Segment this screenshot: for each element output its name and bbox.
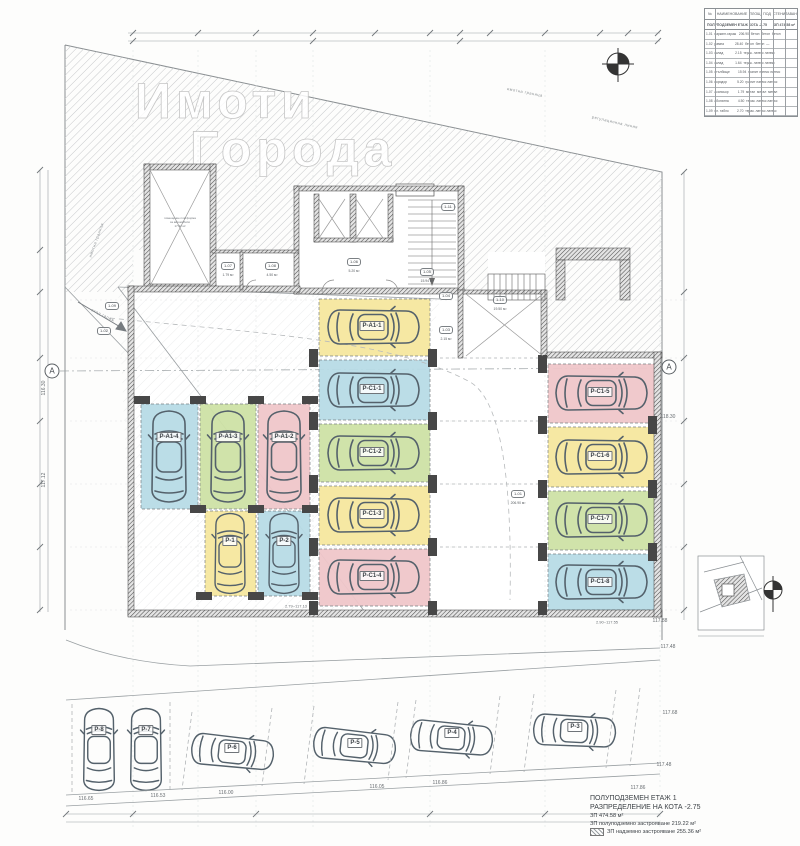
room-tag: 1-03 [439, 326, 453, 334]
area-semi-underground: ЗП полуподземно застрояване 219.22 м² [590, 820, 701, 828]
spot-elevation: 116.86 [433, 780, 448, 786]
schedule-row: 1-06 коридор 5.20 гранит латекс латекс [705, 78, 797, 88]
spot-elevation: 116.53 [151, 793, 166, 799]
area-total: ЗП 474.58 м² [590, 812, 701, 820]
grid-axis-bubble: А [662, 360, 677, 375]
car-platform-note: помещение платформа за автомобили 17.02 … [164, 216, 196, 228]
area-above-text: ЗП надземно застрояване 255.36 м² [607, 828, 701, 836]
col-header: ТАВАН [785, 12, 797, 16]
table-grid-line [715, 9, 716, 116]
spot-elevation: 116.65 [79, 796, 94, 802]
table-grid-line [785, 9, 786, 116]
area-semi-text: ЗП полуподземно застрояване 219.22 м² [590, 820, 696, 828]
stall-label: P-6 [224, 743, 239, 753]
room-area: 5.20 м² [348, 269, 359, 273]
room-tag: 1-04 [439, 292, 453, 300]
stall-label: P-C1-4 [359, 571, 384, 581]
stall-label: P-C1-8 [587, 577, 612, 587]
key-plan [698, 556, 764, 636]
room-tag: 1-02 [97, 327, 111, 335]
stall-label: P-C1-5 [587, 387, 612, 397]
area-total-text: ЗП 474.58 м² [590, 812, 623, 820]
room-tag: 1-01 [511, 490, 525, 498]
floor-plan-sheet: Имоти Города [0, 0, 800, 846]
col-header: № [705, 12, 715, 16]
spot-elevation: 117.88 [653, 618, 668, 624]
plan-drawing: Имоти Города [0, 0, 800, 846]
schedule-row: 1-08 абонатна 4.50 терак. латекс латекс [705, 97, 797, 107]
room-tag: 1-05 [420, 268, 434, 276]
stall-label: P-7 [138, 725, 153, 735]
stall-label: P-C1-7 [587, 514, 612, 524]
stall-label: P-8 [91, 725, 106, 735]
stall-label: P-A1-2 [271, 432, 296, 442]
schedule-row: 1-01 паркинг-гараж 206.90 бетон бетон бе… [705, 30, 797, 40]
schedule-row: 1-05 стълбище 15.94 гранит латекс латекс [705, 68, 797, 78]
hatch-legend-chip [590, 828, 604, 836]
stall-label: P-2 [276, 536, 291, 546]
drawing-legend: ПОЛУПОДЗЕМЕН ЕТАЖ 1 РАЗПРЕДЕЛЕНИЕ НА КОТ… [590, 794, 701, 836]
spot-elevation: 2.90~117.55 [596, 620, 618, 625]
spot-elevation: 116.30 [41, 381, 47, 396]
room-tag: 1-06 [347, 258, 361, 266]
spot-elevation: 117.12 [41, 473, 47, 488]
stall-label: P-C1-2 [359, 447, 384, 457]
note-line: 17.02 м² [164, 224, 196, 228]
schedule-subtitle-row: ПОЛУПОДЗЕМЕН ЕТАЖ КОТА -2.75 ЗП 474.58 м… [705, 20, 797, 30]
stall-label: P-1 [222, 536, 237, 546]
schedule-row: 1-04 склад 1.64 терак. латекс латекс [705, 59, 797, 69]
room-area: 206.90 м² [511, 501, 526, 505]
room-tag: 1-09 [105, 302, 119, 310]
spot-elevation: 117.48 [661, 644, 676, 650]
room-schedule-table: № НАИМЕНОВАНИЕ ПЛОЩ ПОД СТЕНИ ТАВАН ПОЛУ… [704, 8, 798, 117]
stall-label: P-5 [347, 738, 362, 748]
spot-elevation: 117.86 [631, 785, 646, 791]
room-area: 4.50 м² [266, 273, 277, 277]
room-tag: 1-11 [441, 203, 455, 211]
floor-subtitle: РАЗПРЕДЕЛЕНИЕ НА КОТА -2.75 [590, 803, 701, 812]
stall-label: P-A1-3 [215, 432, 240, 442]
schedule-row: 1-02 рампа 28.40 бетон бетон — [705, 40, 797, 50]
room-area: 15.94 м² [421, 279, 434, 283]
table-grid-line [761, 9, 762, 116]
room-area: 1.79 м² [222, 273, 233, 277]
area-above-ground: ЗП надземно застрояване 255.36 м² [590, 828, 701, 836]
stall-label: P-A1-1 [359, 321, 384, 331]
stall-label: P-A1-4 [156, 432, 181, 442]
room-tag: 1-07 [221, 262, 235, 270]
spot-elevation: 116.00 [219, 790, 234, 796]
schedule-row: 1-03 склад 2.15 терак. латекс латекс [705, 49, 797, 59]
room-tag: 1-08 [265, 262, 279, 270]
spot-elevation: 117.48 [657, 762, 672, 768]
schedule-row: 1-07 асансьор 1.79 метал метал метал [705, 88, 797, 98]
room-area: 2.15 м² [440, 337, 451, 341]
floor-title: ПОЛУПОДЗЕМЕН ЕТАЖ 1 [590, 794, 701, 803]
grid-axis-bubble: А [45, 364, 60, 379]
spot-elevation: 118.30 [661, 414, 676, 420]
schedule-row: 1-09 ел. табло 2.70 терак. латекс латекс [705, 107, 797, 117]
room-tag: 1-10 [493, 296, 507, 304]
spot-elevation: 116.05 [370, 784, 385, 790]
col-header: НАИМЕНОВАНИЕ [715, 12, 749, 16]
car-icon [81, 709, 118, 791]
north-arrow-small-icon [764, 576, 782, 612]
room-area: 19.50 м² [494, 307, 507, 311]
spot-elevation: 2.79~117.13 [285, 604, 307, 609]
stall-label: P-4 [444, 728, 459, 738]
north-arrow-icon [602, 48, 634, 82]
stall-label: P-C1-3 [359, 509, 384, 519]
stall-label: P-C1-6 [587, 451, 612, 461]
stall-label: P-C1-1 [359, 384, 384, 394]
table-grid-line [749, 9, 750, 116]
stall-label: P-3 [567, 722, 582, 732]
col-header: ПОД [761, 12, 773, 16]
svg-text:Города: Города [190, 121, 396, 177]
col-header: ПЛОЩ [749, 12, 761, 16]
schedule-header-row: № НАИМЕНОВАНИЕ ПЛОЩ ПОД СТЕНИ ТАВАН [705, 9, 797, 20]
spot-elevation: 117.68 [663, 710, 678, 716]
col-header: СТЕНИ [773, 12, 785, 16]
table-grid-line [773, 9, 774, 116]
